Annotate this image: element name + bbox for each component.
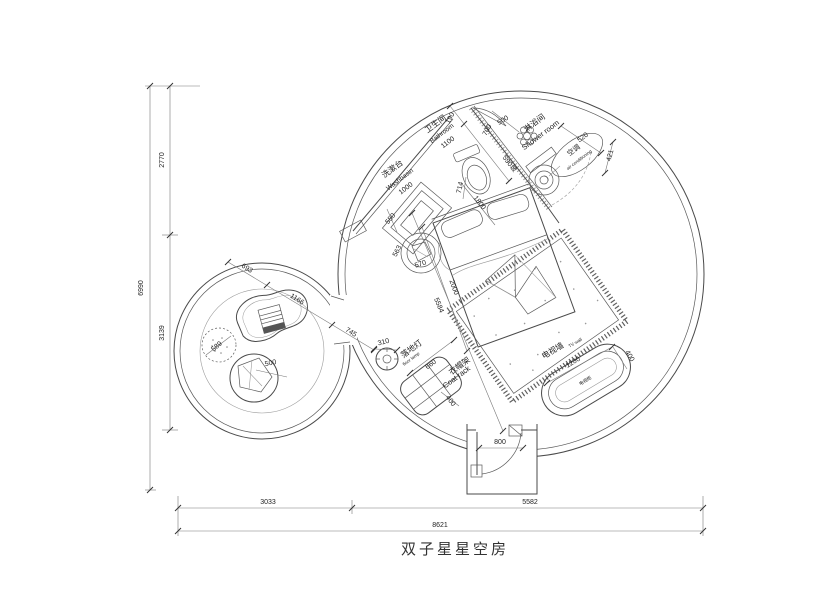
shower-area-boundary	[552, 152, 591, 205]
drawing-title: 双子星星空房	[401, 541, 509, 558]
dim-500: 500	[496, 115, 510, 127]
lounge-room-inner-wall	[180, 269, 344, 433]
blanket-folds	[481, 247, 558, 324]
labels: 6990 2770 3139 3033 5582 8621 洗漱台 Washba…	[138, 111, 635, 558]
dim-5584: 5584	[432, 297, 445, 314]
dim-width-total: 8621	[432, 522, 448, 529]
dim-door-width: 800	[494, 439, 506, 446]
dim-1200: 1200	[565, 356, 582, 370]
dim-rack-400: 400	[444, 394, 457, 408]
floor-lamp-icon	[376, 348, 398, 370]
lounge-floor-circle	[200, 289, 324, 413]
kidney-table	[232, 284, 313, 346]
dim-height-bottom: 3139	[159, 325, 166, 341]
lounge-room-outer-wall	[174, 263, 350, 439]
entrance-vestibule: 800	[467, 424, 537, 494]
dimension-lines	[145, 83, 706, 536]
dim-2000: 2000	[447, 279, 459, 296]
bedside-rug	[448, 230, 627, 402]
floor-plan-drawing: 800 空调 a	[0, 0, 837, 592]
dim-height-top: 2770	[159, 152, 166, 168]
dim-stool-h: 570	[414, 259, 427, 269]
dim-height-total: 6990	[138, 280, 145, 296]
dim-pouf-589: 589	[210, 340, 224, 353]
dim-310: 310	[377, 338, 390, 348]
double-bed	[427, 184, 575, 349]
dim-550: 550	[384, 212, 397, 226]
tv-wall-label-cn: 电视墙	[540, 340, 566, 361]
dim-421: 421	[606, 149, 616, 162]
fan-coil-icon	[529, 165, 559, 195]
floor-plan-page: 800 空调 a	[0, 0, 837, 592]
dim-520: 520	[576, 131, 590, 144]
dim-1800: 1800	[472, 195, 487, 212]
tv-cabinet-label: 电视柜	[578, 374, 594, 387]
dim-width-left: 3033	[260, 499, 276, 506]
dim-tv-400: 400	[623, 349, 635, 363]
laptop-icon	[258, 305, 285, 334]
dim-width-right: 5582	[522, 499, 538, 506]
dim-190: 190	[445, 111, 457, 125]
